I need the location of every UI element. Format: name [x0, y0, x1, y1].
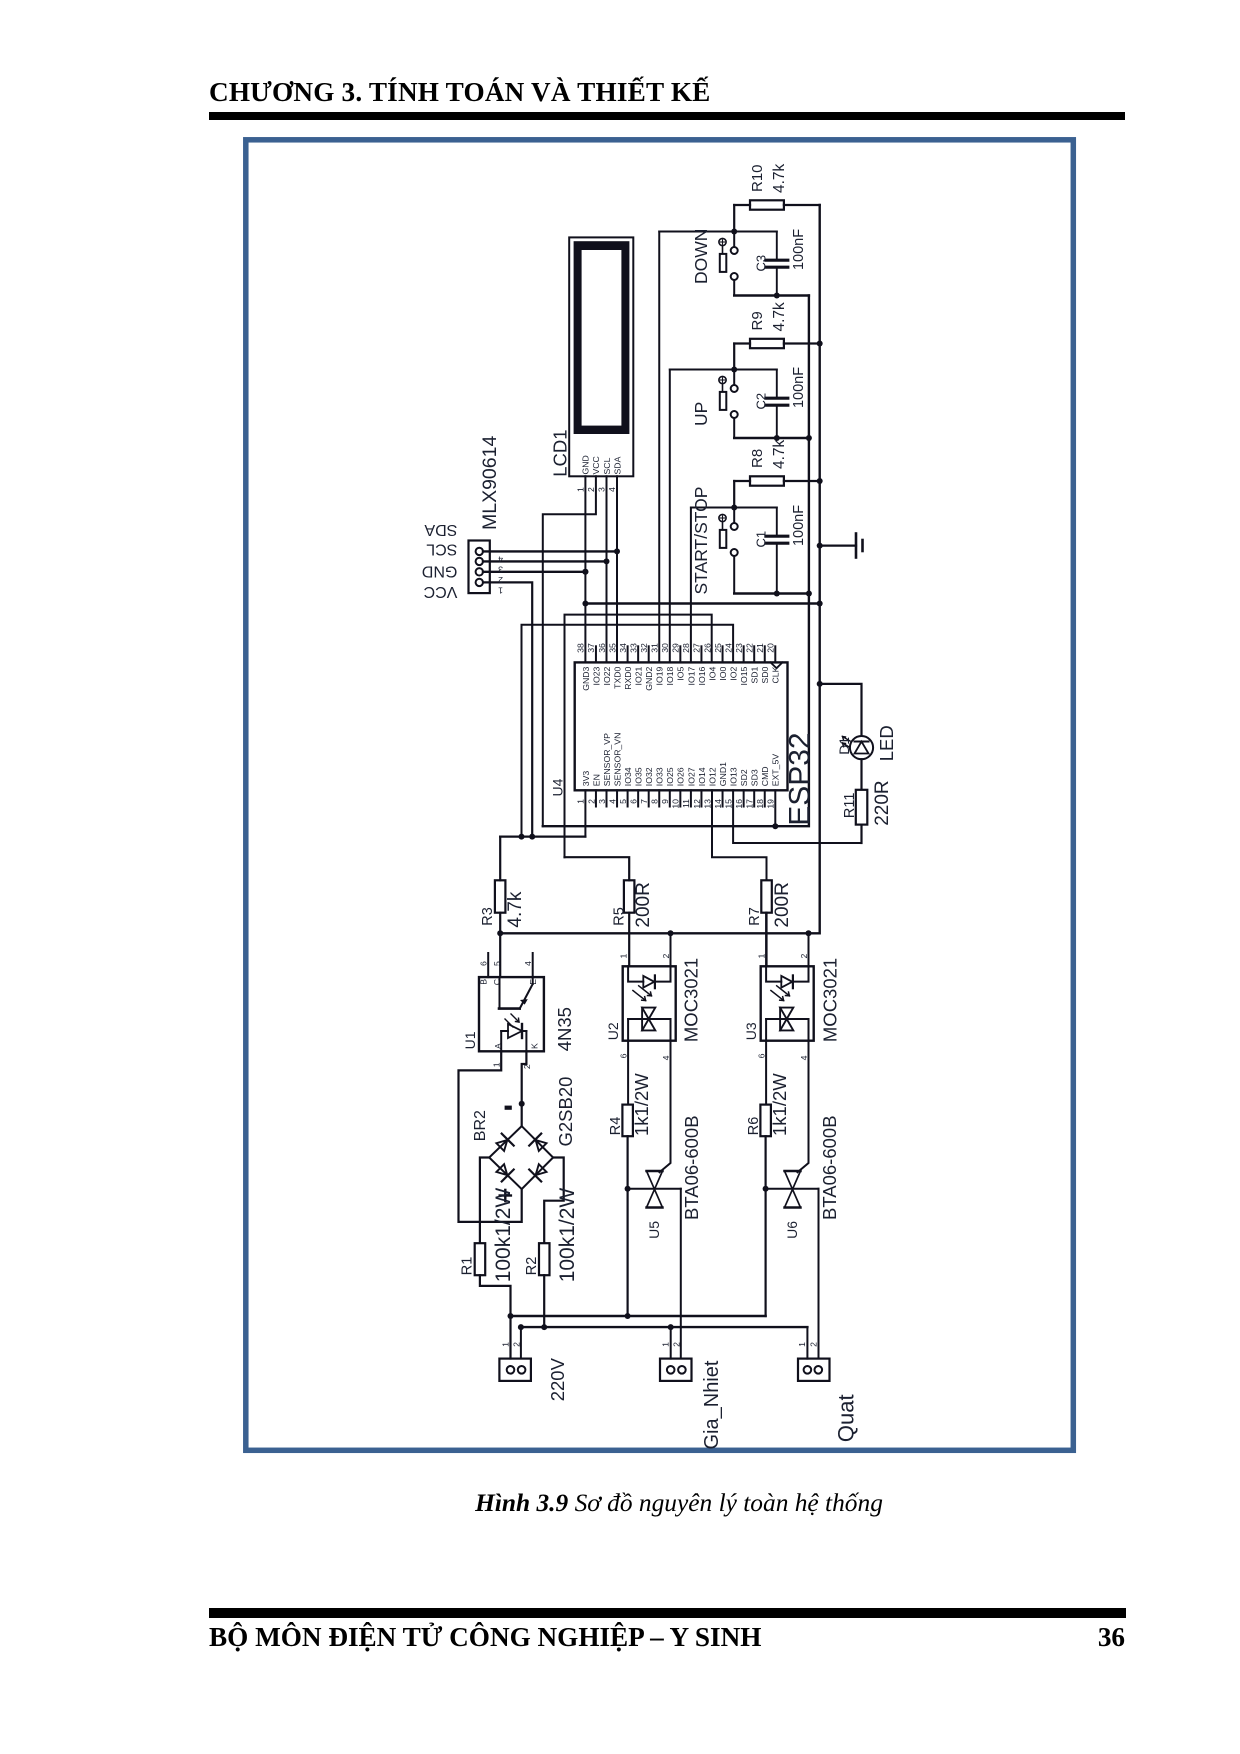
svg-text:4: 4 — [607, 487, 617, 492]
svg-text:9: 9 — [660, 799, 670, 804]
svg-text:IO32: IO32 — [644, 767, 654, 786]
svg-text:13: 13 — [702, 799, 712, 809]
svg-text:4: 4 — [607, 799, 617, 804]
svg-text:LCD1: LCD1 — [550, 429, 571, 476]
svg-text:8: 8 — [650, 799, 660, 804]
svg-text:R10: R10 — [749, 164, 766, 192]
svg-text:U5: U5 — [646, 1221, 662, 1239]
svg-text:IO5: IO5 — [676, 666, 686, 680]
svg-text:4N35: 4N35 — [554, 1007, 575, 1051]
svg-text:BTA06-600B: BTA06-600B — [681, 1115, 702, 1220]
svg-text:6: 6 — [479, 961, 489, 966]
svg-text:14: 14 — [713, 799, 723, 809]
svg-text:3: 3 — [597, 487, 607, 492]
svg-text:VCC: VCC — [424, 583, 458, 600]
svg-text:SDA: SDA — [612, 456, 622, 474]
svg-text:1: 1 — [661, 1342, 671, 1347]
svg-text:SDA: SDA — [424, 521, 457, 538]
svg-text:17: 17 — [745, 799, 755, 809]
svg-text:1: 1 — [756, 954, 766, 959]
svg-text:16: 16 — [734, 799, 744, 809]
svg-text:U4: U4 — [549, 778, 565, 796]
svg-text:100k1/2W: 100k1/2W — [492, 1188, 515, 1283]
svg-text:3: 3 — [597, 799, 607, 804]
svg-text:29: 29 — [671, 643, 681, 653]
svg-text:4: 4 — [799, 1055, 809, 1060]
svg-text:GND1: GND1 — [718, 762, 728, 786]
svg-text:11: 11 — [681, 799, 691, 808]
svg-text:LED: LED — [876, 725, 897, 761]
svg-text:38: 38 — [576, 643, 586, 653]
svg-text:B: B — [479, 979, 489, 985]
svg-text:2: 2 — [586, 799, 596, 804]
svg-text:IO16: IO16 — [697, 666, 707, 685]
svg-text:C2: C2 — [754, 393, 769, 410]
svg-text:SD3: SD3 — [750, 769, 760, 786]
svg-text:Gia_Nhiet: Gia_Nhiet — [701, 1360, 723, 1449]
svg-text:MLX90614: MLX90614 — [479, 436, 501, 530]
svg-text:2: 2 — [672, 1342, 682, 1347]
svg-text:SD0: SD0 — [760, 666, 770, 683]
svg-text:6: 6 — [618, 1053, 628, 1058]
svg-text:R5: R5 — [612, 907, 628, 926]
svg-text:GND3: GND3 — [581, 666, 591, 690]
svg-text:100nF: 100nF — [791, 367, 807, 408]
svg-text:IO21: IO21 — [634, 666, 644, 685]
svg-text:C1: C1 — [754, 531, 769, 548]
svg-text:2: 2 — [498, 575, 503, 585]
svg-text:23: 23 — [734, 643, 744, 653]
svg-text:1: 1 — [492, 1062, 502, 1067]
svg-text:30: 30 — [660, 643, 670, 653]
svg-text:18: 18 — [755, 799, 765, 809]
svg-text:200R: 200R — [772, 882, 793, 927]
svg-text:1k1/2W: 1k1/2W — [631, 1073, 652, 1136]
svg-text:4.7k: 4.7k — [771, 163, 788, 193]
svg-text:2: 2 — [661, 954, 671, 959]
svg-text:TXD0: TXD0 — [612, 666, 622, 688]
svg-text:IO4: IO4 — [707, 666, 717, 680]
svg-text:MOC3021: MOC3021 — [681, 958, 702, 1042]
svg-text:SD2: SD2 — [739, 769, 749, 786]
svg-text:4: 4 — [523, 961, 533, 966]
svg-text:36: 36 — [597, 643, 607, 653]
svg-text:100k1/2W: 100k1/2W — [556, 1188, 579, 1283]
svg-text:IO0: IO0 — [718, 666, 728, 680]
svg-text:UP: UP — [691, 402, 711, 426]
svg-text:CMD: CMD — [760, 766, 770, 786]
svg-text:37: 37 — [586, 643, 596, 653]
svg-text:IO12: IO12 — [707, 767, 717, 786]
svg-text:GND: GND — [422, 563, 458, 580]
svg-text:33: 33 — [628, 643, 638, 653]
svg-text:5: 5 — [618, 799, 628, 804]
svg-text:EXT_5V: EXT_5V — [771, 754, 781, 787]
svg-text:ESP32: ESP32 — [784, 732, 817, 825]
svg-text:6: 6 — [628, 799, 638, 804]
svg-text:U1: U1 — [462, 1031, 478, 1049]
svg-text:1k1/2W: 1k1/2W — [769, 1073, 790, 1136]
svg-text:4: 4 — [498, 555, 503, 565]
svg-text:26: 26 — [702, 643, 712, 653]
svg-text:Quat: Quat — [834, 1394, 859, 1442]
svg-text:21: 21 — [755, 643, 765, 653]
svg-text:CLK: CLK — [771, 666, 781, 683]
svg-text:IO19: IO19 — [655, 666, 665, 685]
svg-text:1: 1 — [498, 586, 503, 596]
svg-text:1: 1 — [500, 1342, 510, 1347]
svg-text:MOC3021: MOC3021 — [820, 958, 841, 1042]
svg-text:GND: GND — [581, 455, 591, 474]
svg-text:3: 3 — [498, 565, 503, 575]
svg-text:6: 6 — [756, 1053, 766, 1058]
svg-text:IO18: IO18 — [665, 666, 675, 685]
svg-text:C3: C3 — [754, 255, 769, 272]
svg-text:SD1: SD1 — [750, 666, 760, 683]
svg-text:31: 31 — [650, 643, 660, 653]
svg-text:START/STOP: START/STOP — [691, 487, 711, 595]
svg-text:IO13: IO13 — [729, 767, 739, 786]
svg-text:IO2: IO2 — [729, 666, 739, 680]
svg-text:IO25: IO25 — [665, 767, 675, 786]
svg-text:IO14: IO14 — [697, 767, 707, 786]
svg-text:25: 25 — [713, 643, 723, 653]
svg-text:4.7k: 4.7k — [771, 439, 788, 469]
svg-text:GND2: GND2 — [644, 666, 654, 690]
svg-text:R6: R6 — [746, 1117, 762, 1136]
svg-text:1: 1 — [576, 799, 586, 804]
svg-text:2: 2 — [808, 1342, 818, 1347]
svg-text:R9: R9 — [749, 311, 766, 330]
svg-text:35: 35 — [607, 643, 617, 653]
svg-text:SCL: SCL — [426, 541, 457, 558]
svg-text:2: 2 — [511, 1342, 521, 1347]
svg-text:1: 1 — [618, 954, 628, 959]
svg-text:IO35: IO35 — [634, 767, 644, 786]
svg-text:R3: R3 — [480, 907, 496, 926]
svg-text:BR2: BR2 — [472, 1110, 489, 1141]
svg-text:VCC: VCC — [591, 456, 601, 474]
svg-text:22: 22 — [745, 643, 755, 653]
svg-text:IO22: IO22 — [602, 666, 612, 685]
svg-text:K: K — [530, 1043, 540, 1049]
svg-text:19: 19 — [766, 799, 776, 809]
svg-text:4.7k: 4.7k — [505, 891, 526, 927]
svg-text:IO17: IO17 — [686, 666, 696, 685]
svg-text:R2: R2 — [524, 1257, 540, 1276]
svg-text:R4: R4 — [608, 1117, 624, 1136]
svg-text:200R: 200R — [633, 882, 654, 927]
svg-text:R11: R11 — [842, 793, 858, 819]
svg-text:20: 20 — [766, 643, 776, 653]
svg-text:R8: R8 — [749, 449, 766, 468]
svg-text:SENSOR_VN: SENSOR_VN — [612, 733, 622, 787]
svg-text:IO26: IO26 — [676, 767, 686, 786]
svg-text:1: 1 — [575, 487, 585, 492]
svg-text:IO27: IO27 — [686, 767, 696, 786]
svg-text:24: 24 — [723, 643, 733, 653]
svg-text:10: 10 — [671, 799, 681, 809]
svg-text:G2SB20: G2SB20 — [555, 1077, 576, 1147]
svg-text:220R: 220R — [872, 780, 893, 825]
svg-text:D1: D1 — [836, 737, 852, 755]
svg-text:100nF: 100nF — [791, 229, 807, 270]
svg-text:1: 1 — [797, 1342, 807, 1347]
svg-text:2: 2 — [799, 954, 809, 959]
svg-text:15: 15 — [723, 799, 733, 809]
svg-text:EN: EN — [591, 774, 601, 786]
svg-text:SCL: SCL — [602, 457, 612, 474]
svg-text:IO33: IO33 — [655, 767, 665, 786]
svg-text:RXD0: RXD0 — [623, 666, 633, 689]
svg-text:U6: U6 — [784, 1221, 800, 1239]
svg-text:BTA06-600B: BTA06-600B — [819, 1115, 840, 1220]
svg-text:3V3: 3V3 — [581, 771, 591, 787]
svg-text:34: 34 — [618, 643, 628, 653]
svg-text:R1: R1 — [460, 1257, 476, 1276]
svg-text:32: 32 — [639, 643, 649, 653]
svg-text:28: 28 — [681, 643, 691, 653]
svg-text:7: 7 — [639, 799, 649, 804]
svg-text:DOWN: DOWN — [691, 229, 711, 284]
svg-text:IO23: IO23 — [591, 666, 601, 685]
svg-text:4.7k: 4.7k — [771, 302, 788, 332]
svg-text:220V: 220V — [547, 1357, 568, 1401]
svg-text:27: 27 — [692, 643, 702, 653]
svg-text:IO34: IO34 — [623, 767, 633, 786]
svg-text:100nF: 100nF — [791, 505, 807, 546]
svg-text:IO15: IO15 — [739, 666, 749, 685]
svg-text:12: 12 — [692, 799, 702, 809]
svg-text:2: 2 — [586, 487, 596, 492]
svg-text:SENSOR_VP: SENSOR_VP — [602, 733, 612, 786]
svg-text:R7: R7 — [747, 907, 763, 926]
svg-text:4: 4 — [661, 1055, 671, 1060]
svg-text:U3: U3 — [743, 1022, 759, 1040]
svg-text:U2: U2 — [605, 1022, 621, 1040]
svg-text:5: 5 — [492, 961, 502, 966]
